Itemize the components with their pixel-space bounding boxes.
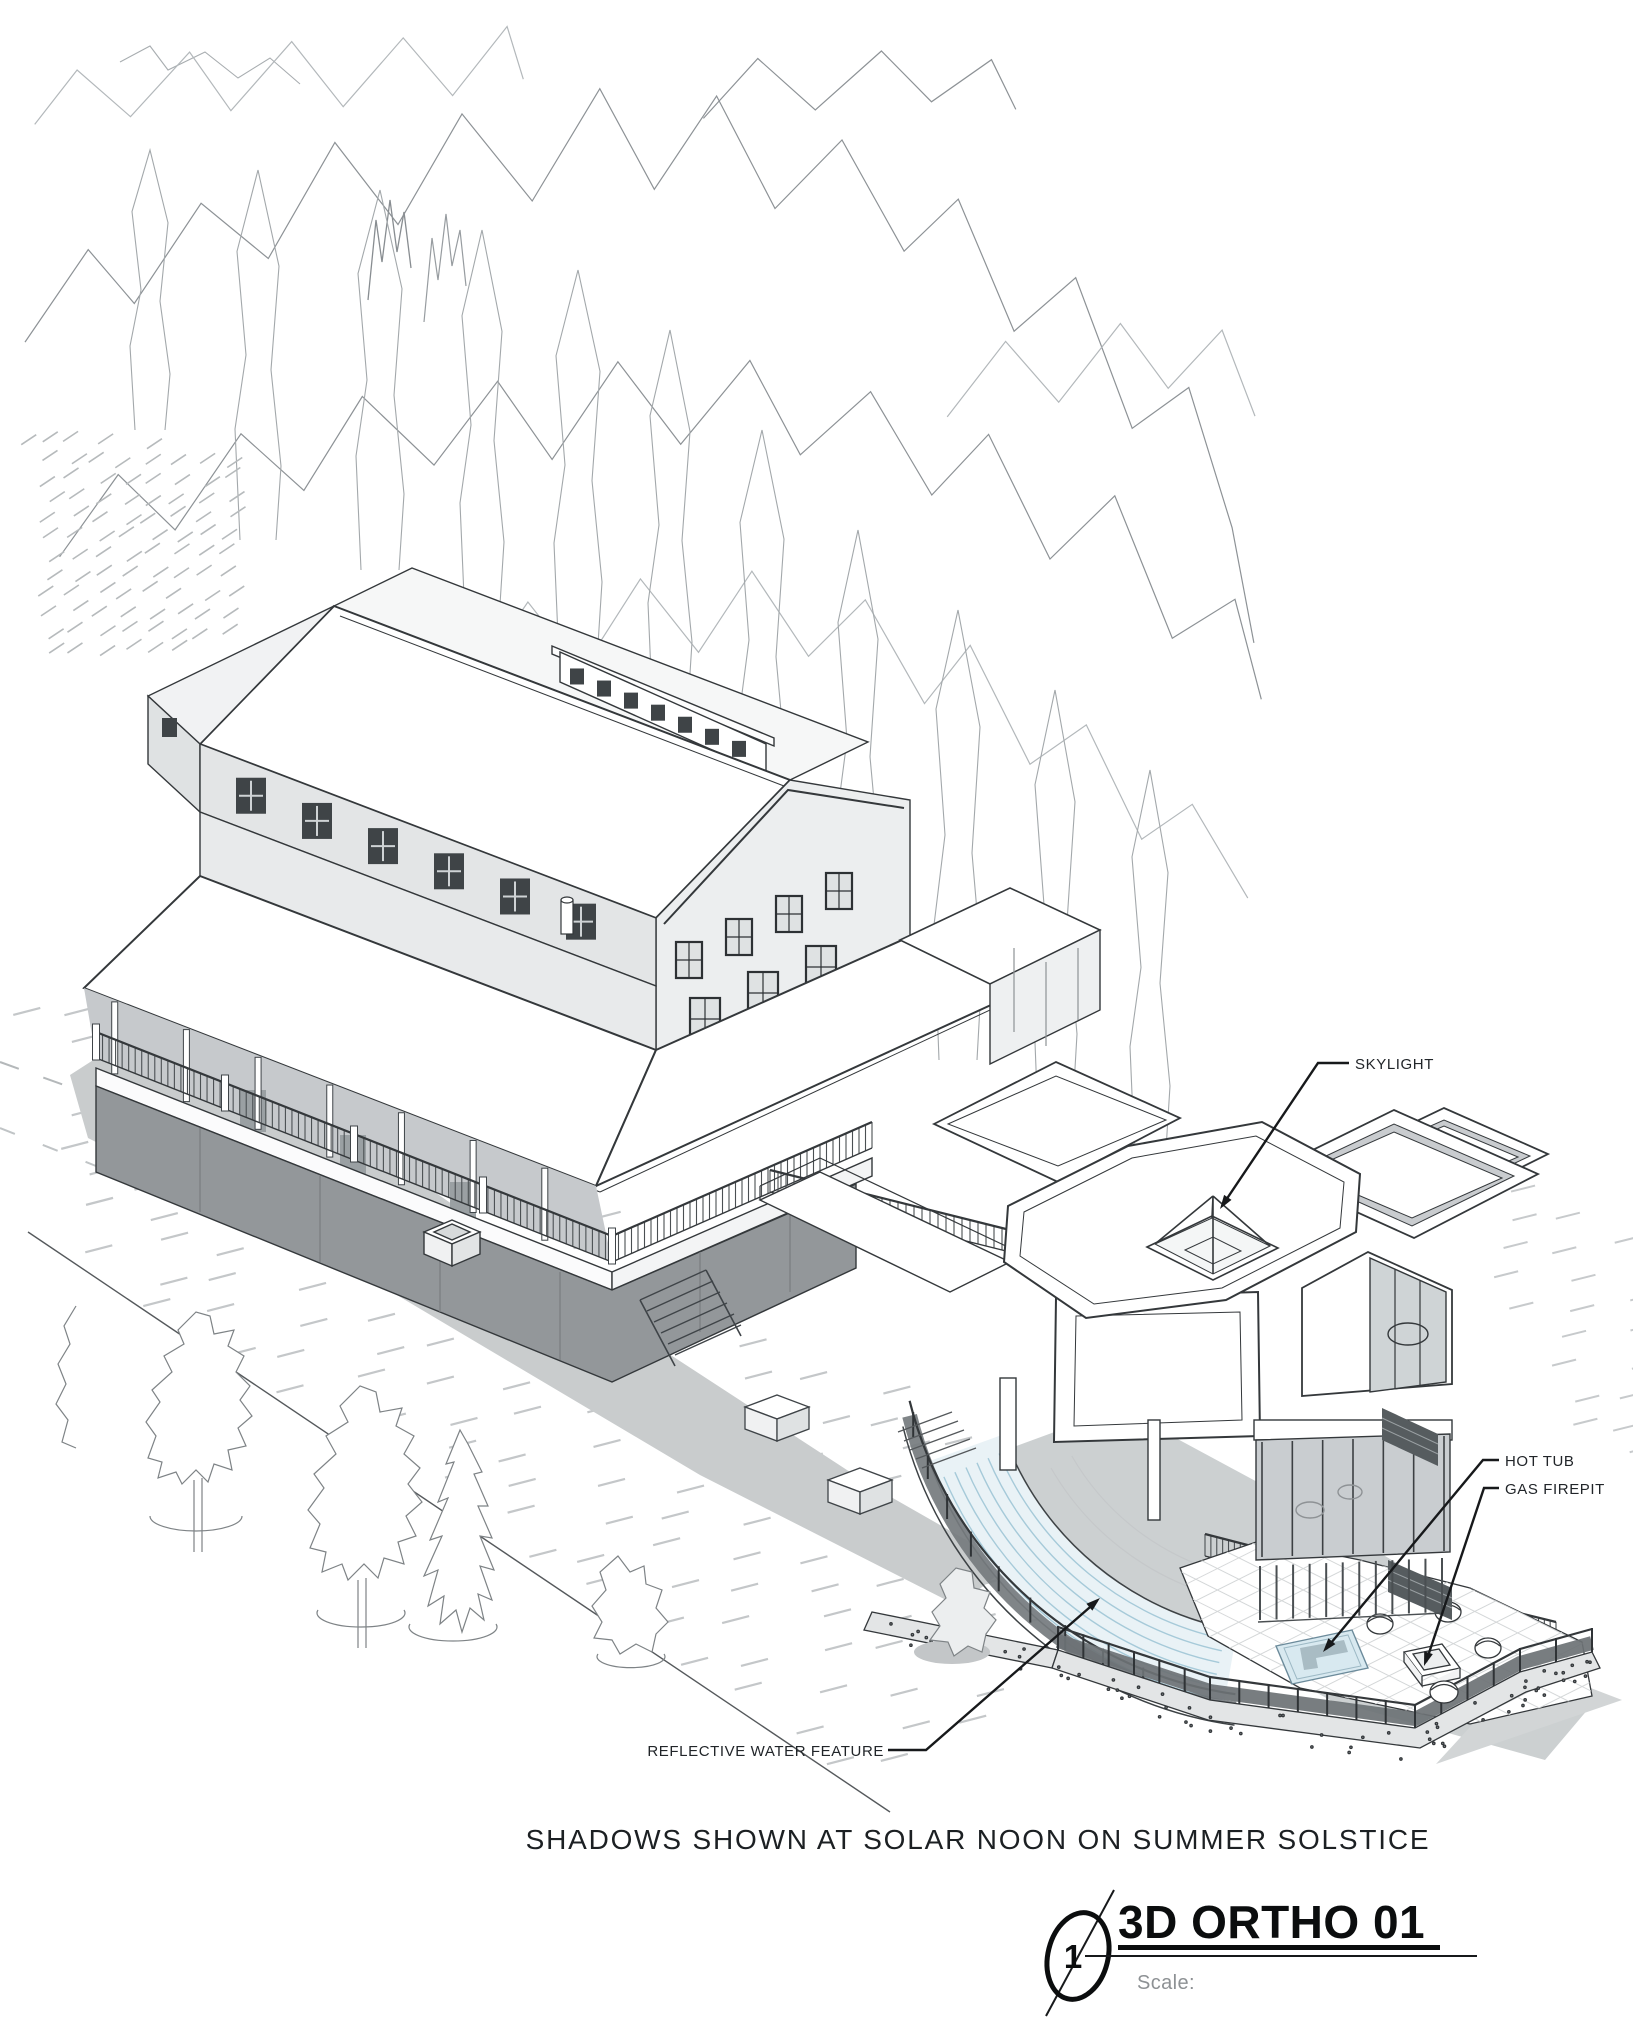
gas-firepit-label: GAS FIREPIT [1505,1481,1605,1498]
flat-roof-slabs [934,1062,1548,1318]
glass-corner-wing [1302,1252,1452,1396]
shadow-caption: SHADOWS SHOWN AT SOLAR NOON ON SUMMER SO… [526,1824,1431,1855]
reflective-water-feature-label: REFLECTIVE WATER FEATURE [647,1743,884,1760]
view-title: 3D ORTHO 01 [1118,1896,1425,1948]
roof-vent-pipe [561,897,573,934]
hot-tub-label: HOT TUB [1505,1453,1575,1470]
ortho-view-drawing: SKYLIGHT HOT TUB GAS FIREPIT REFLECTIVE … [0,0,1633,2033]
title-underline [1118,1945,1440,1950]
drawing-sheet: SKYLIGHT HOT TUB GAS FIREPIT REFLECTIVE … [0,0,1633,2033]
skylight-label: SKYLIGHT [1355,1056,1434,1073]
scale-label: Scale: [1137,1972,1195,1994]
detail-number: 1 [1064,1938,1082,1975]
title-block: 1 3D ORTHO 01 Scale: [1038,1890,1477,2016]
